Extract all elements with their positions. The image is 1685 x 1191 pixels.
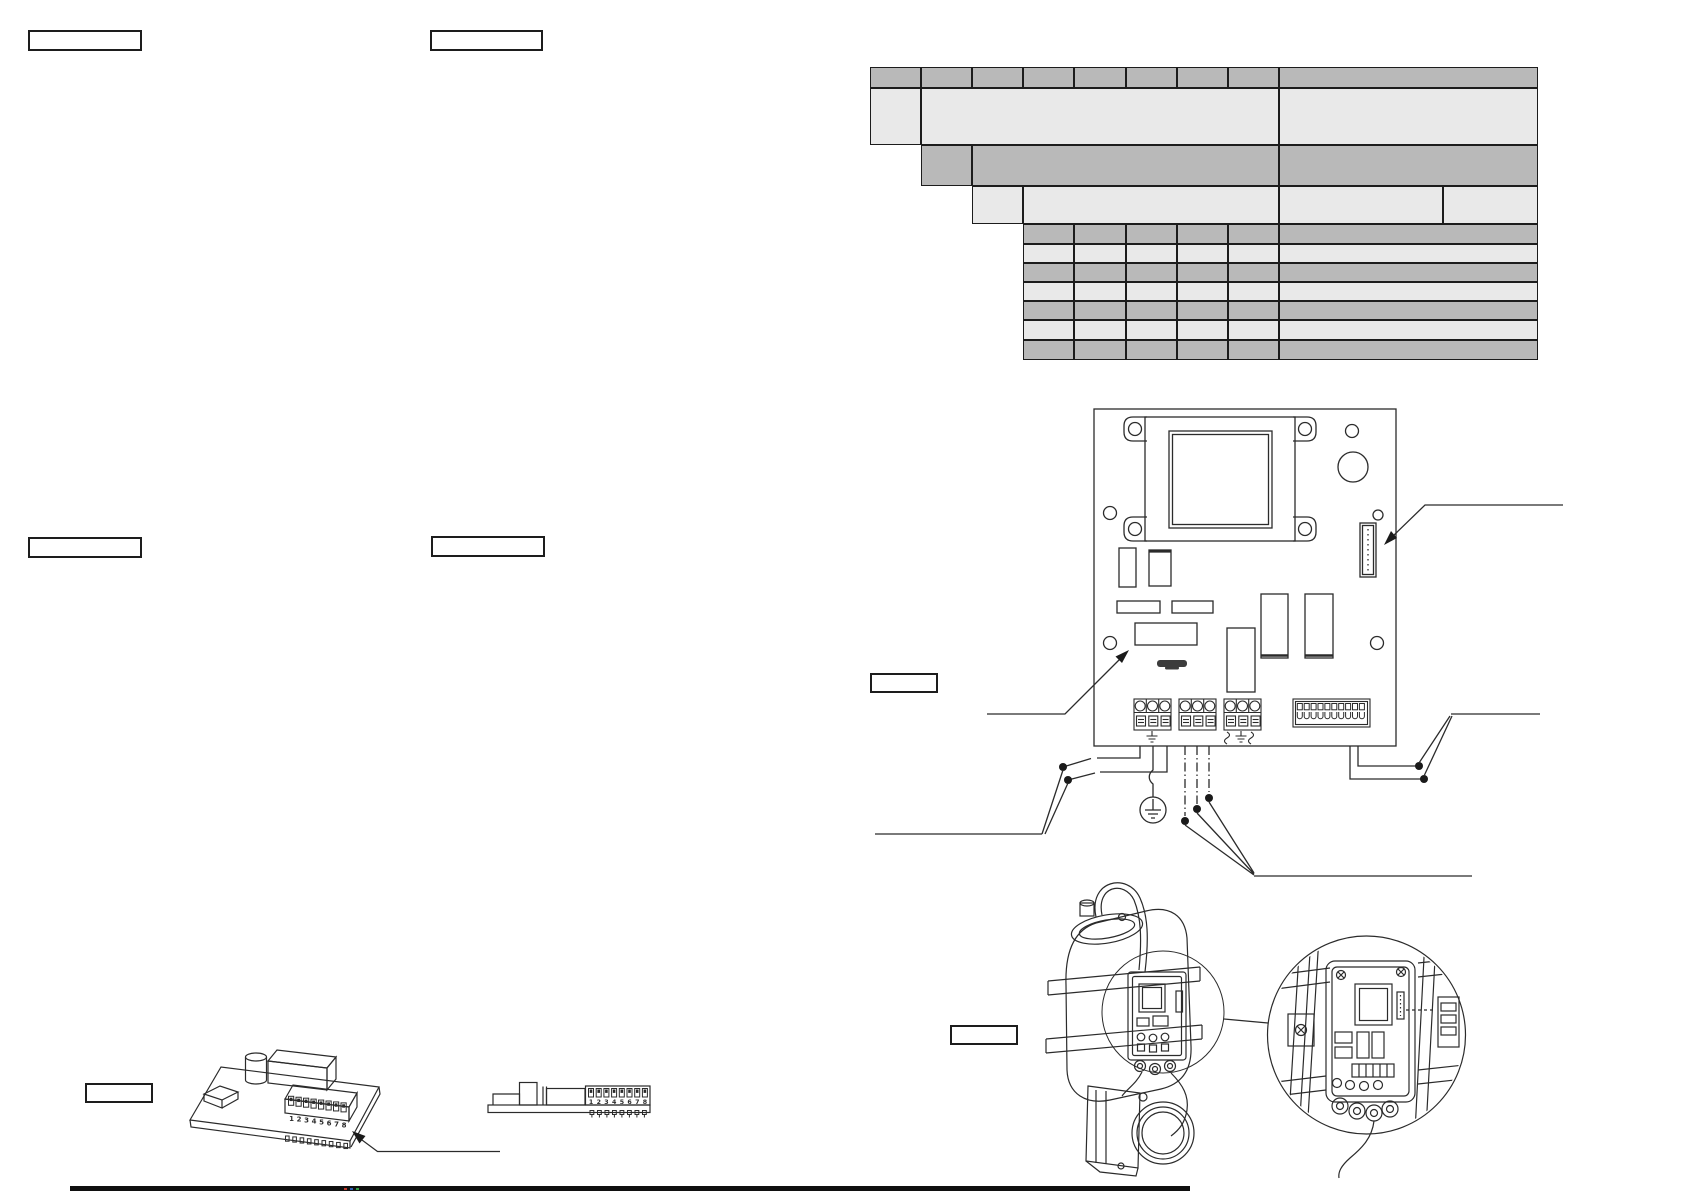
dip-digit: 7 [635, 1099, 639, 1106]
label-box-iso-pcb [85, 1083, 153, 1103]
footer-bar [70, 1186, 1190, 1191]
callout-line-connector [1392, 505, 1563, 537]
dip-digit: 8 [342, 1121, 347, 1129]
wire-node [1181, 817, 1189, 825]
label-box-device [950, 1025, 1018, 1045]
side-board [488, 1105, 650, 1113]
dip-digit: 5 [620, 1099, 624, 1106]
dip-digit: 6 [627, 1099, 632, 1106]
iso-small-box [204, 1086, 238, 1108]
valve-device-figure [1046, 883, 1268, 1176]
terminal-symbols [1147, 731, 1254, 744]
motor-assembly [1086, 1086, 1194, 1176]
dip-digit: 8 [643, 1099, 647, 1106]
callout-line-relay [987, 659, 1120, 714]
hose-loop [1095, 883, 1147, 972]
magnifier-circle [1268, 936, 1466, 1134]
wire-node [1415, 762, 1423, 770]
magnifier-link-line [1224, 1019, 1268, 1023]
board-outline [1094, 409, 1396, 746]
wall-frame [1268, 936, 1464, 1134]
wire-node [1205, 794, 1213, 802]
tank-lid [1069, 900, 1145, 949]
dip-digit: 5 [319, 1119, 324, 1127]
label-box-top-left-2 [430, 30, 543, 51]
earth-ground-symbol [1140, 746, 1166, 823]
jumper [1157, 660, 1187, 667]
dip-digit: 4 [612, 1099, 617, 1106]
label-box-mid-left-2 [431, 536, 545, 557]
side-dip-elements: 12345678 [589, 1089, 648, 1118]
diagram-layer: 12345678 12345678 [0, 0, 1685, 1191]
callout-line-dip [362, 1140, 500, 1152]
dip-digit: 1 [289, 1115, 294, 1123]
wiring-callouts [875, 505, 1563, 876]
transformer [1124, 417, 1316, 541]
wire-node [1420, 775, 1428, 783]
board-components [1117, 548, 1333, 692]
pin-connector [1360, 523, 1376, 577]
iso-pcb-figure: 12345678 [190, 1050, 500, 1152]
dip-digit: 1 [589, 1099, 593, 1106]
iso-relay [268, 1050, 336, 1090]
manual-page: 12345678 12345678 [0, 0, 1685, 1191]
wall-mount-detail-figure [1268, 936, 1466, 1178]
mount-bracket [1288, 1014, 1314, 1046]
dip-digit: 2 [597, 1099, 601, 1106]
mounting-straps [1046, 967, 1202, 1053]
wire-node [1064, 776, 1072, 784]
label-box-mid-left-1 [28, 537, 142, 558]
dip-digit: 7 [334, 1120, 339, 1128]
wire-node [1059, 763, 1067, 771]
terminal-blocks [1134, 699, 1261, 730]
iso-capacitor [246, 1053, 267, 1084]
relay-component [1135, 623, 1197, 645]
label-box-top-left-1 [28, 30, 142, 51]
dip-digit: 4 [312, 1118, 317, 1126]
detail-control-box [1326, 961, 1415, 1102]
dip-digit: 3 [604, 1099, 608, 1106]
arrow-to-connector [1384, 531, 1397, 545]
label-box-board-callout [870, 673, 938, 693]
terminal-strip-pins [1297, 704, 1364, 719]
control-board-figure [1094, 409, 1396, 746]
detail-cable [1339, 1121, 1374, 1178]
side-dip-switch [586, 1086, 651, 1105]
side-pcb-figure: 12345678 [488, 1083, 650, 1118]
wire-node [1193, 805, 1201, 813]
dip-digit: 6 [327, 1120, 332, 1128]
dip-digit: 2 [297, 1116, 302, 1124]
dip-digit: 3 [304, 1117, 309, 1125]
